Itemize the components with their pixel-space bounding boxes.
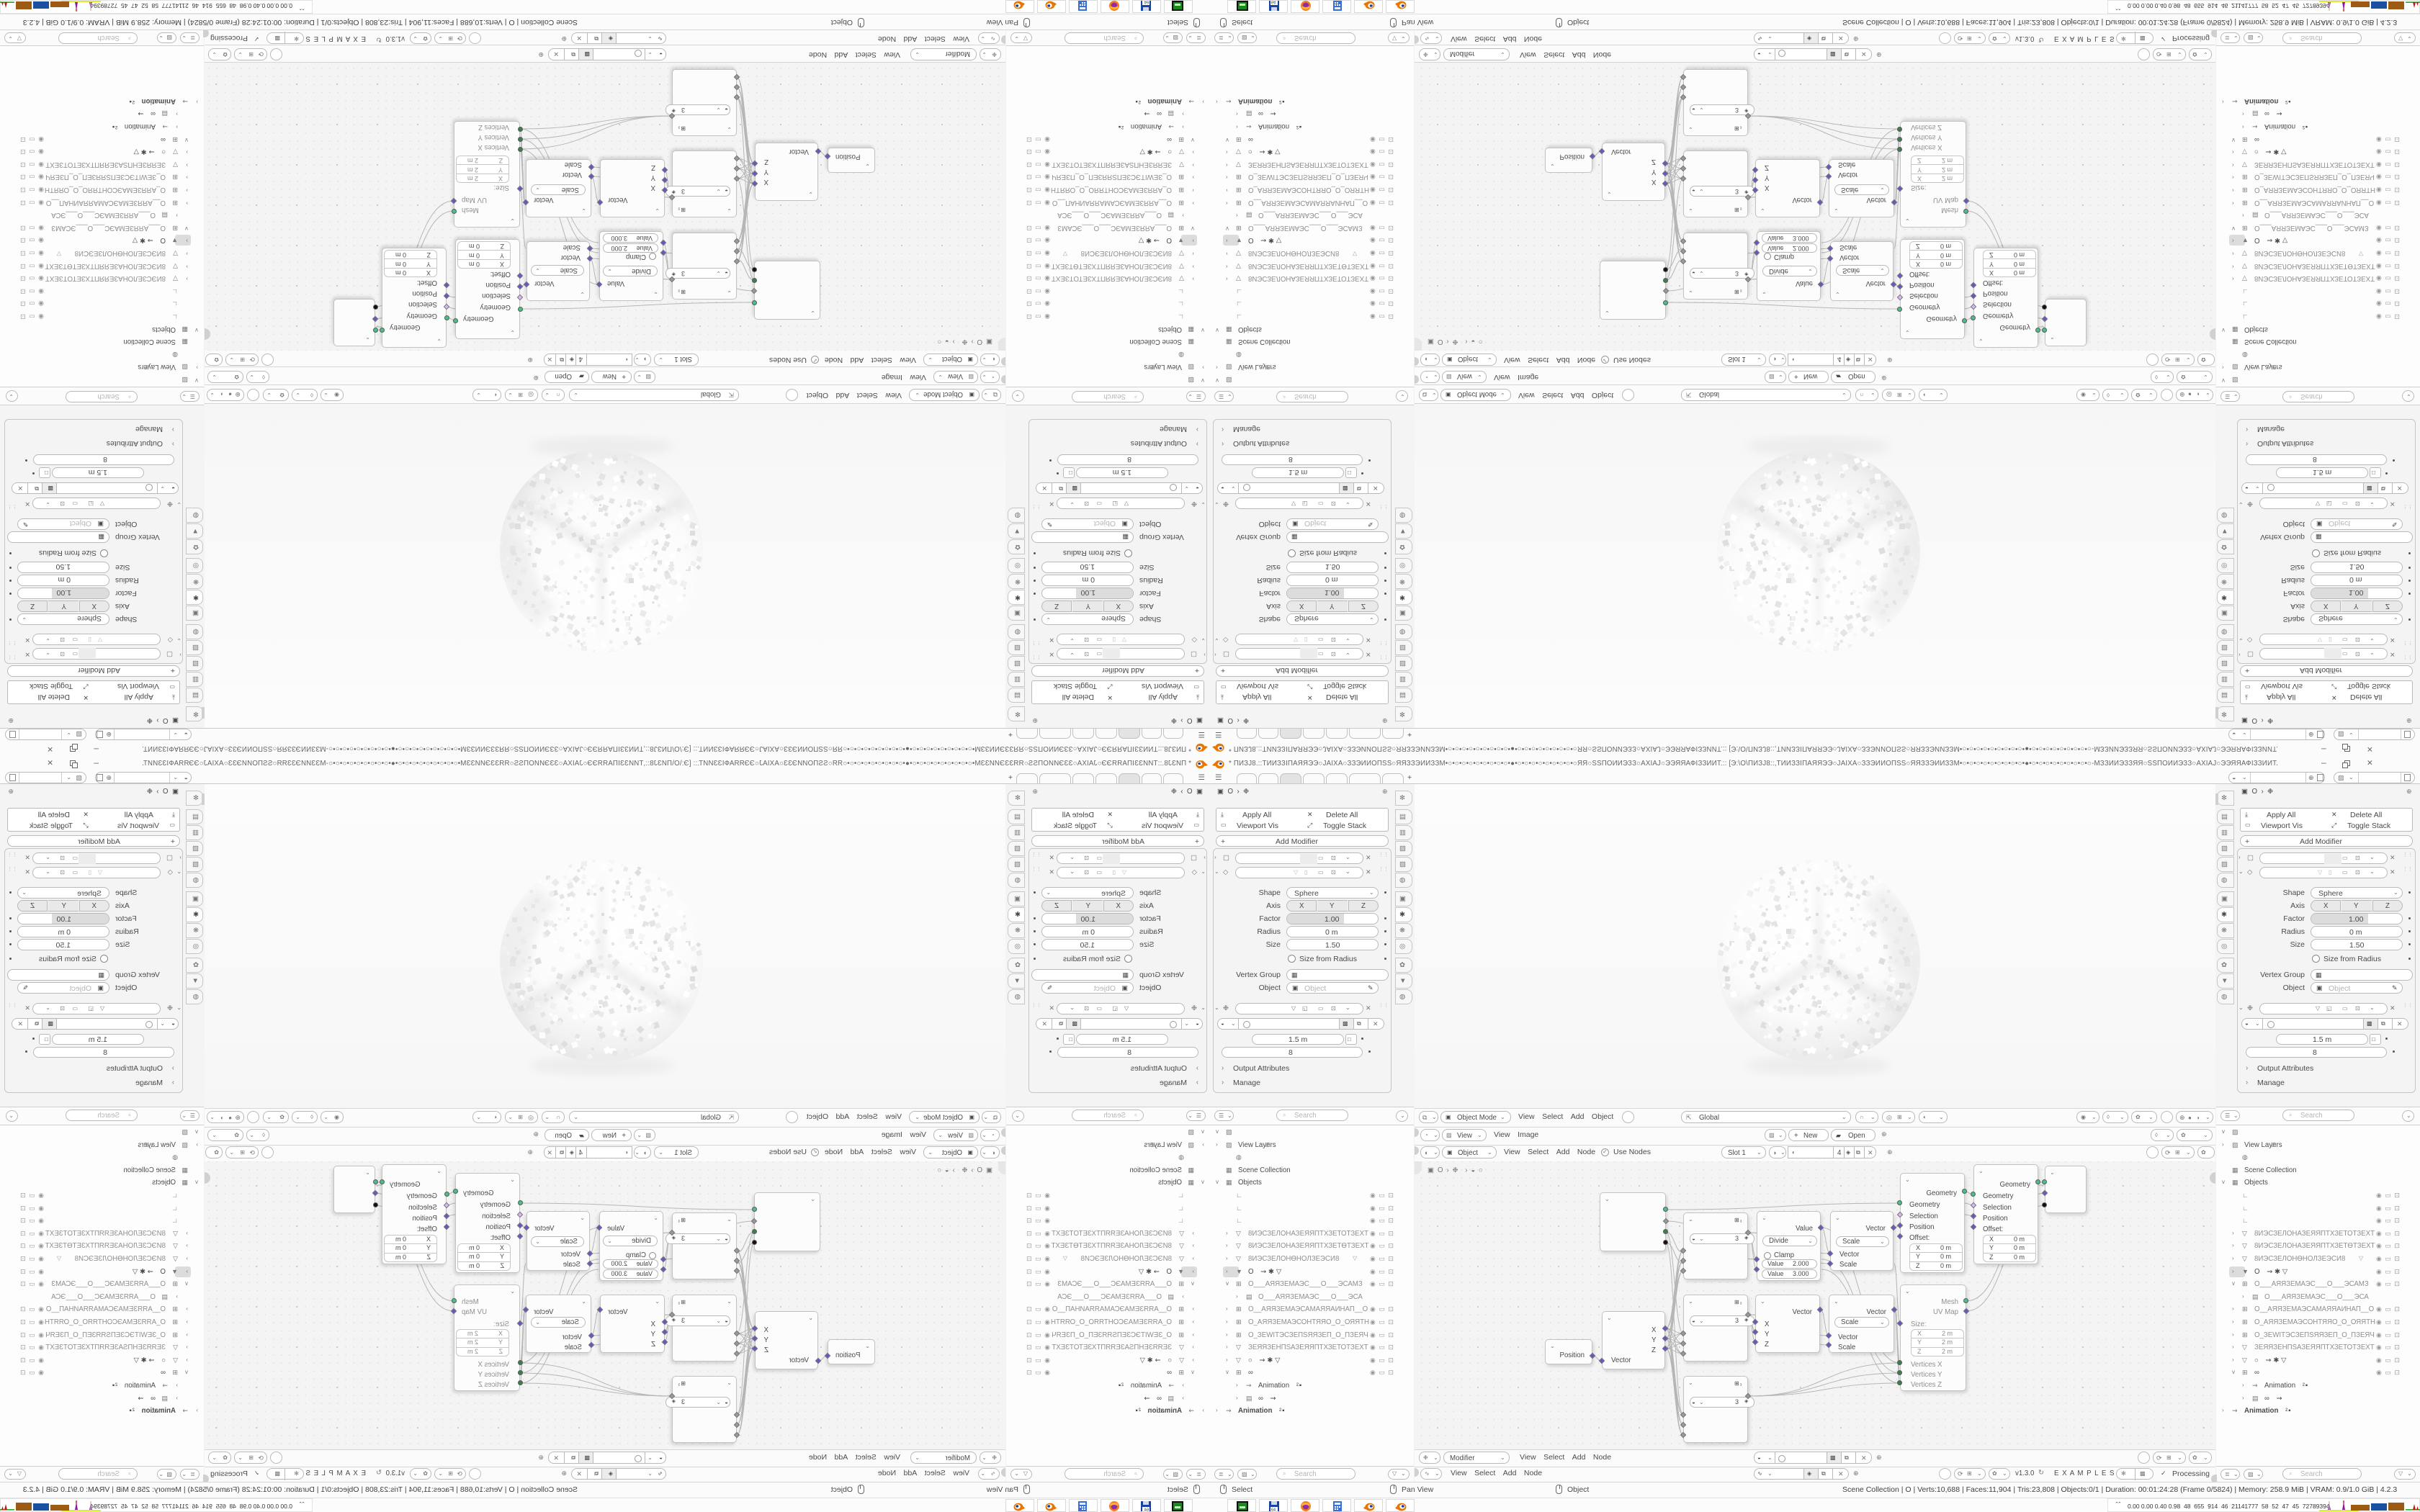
svg-text:64: 64 bbox=[1271, 1508, 1276, 1512]
svg-text:64: 64 bbox=[1144, 1508, 1149, 1512]
svg-text:64: 64 bbox=[1271, 0, 1276, 4]
svg-text:64: 64 bbox=[1144, 0, 1149, 4]
